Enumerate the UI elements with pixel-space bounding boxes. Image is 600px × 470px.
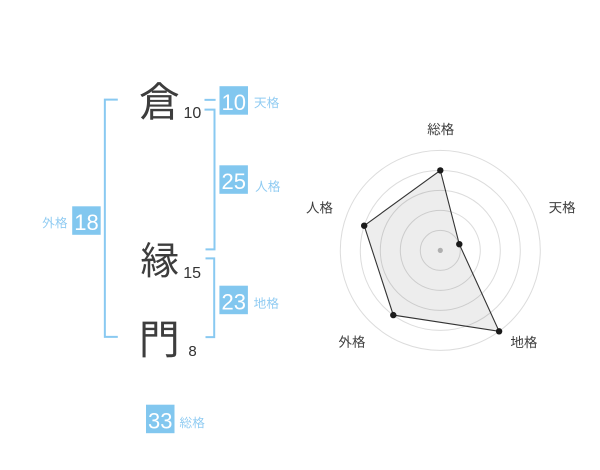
svg-text:23: 23 bbox=[221, 289, 245, 314]
svg-text:8: 8 bbox=[188, 343, 196, 360]
svg-text:10: 10 bbox=[184, 105, 202, 122]
svg-text:10: 10 bbox=[222, 90, 246, 115]
svg-text:33: 33 bbox=[148, 408, 172, 433]
svg-text:18: 18 bbox=[74, 210, 98, 235]
svg-text:15: 15 bbox=[183, 265, 201, 282]
svg-text:25: 25 bbox=[221, 169, 245, 194]
